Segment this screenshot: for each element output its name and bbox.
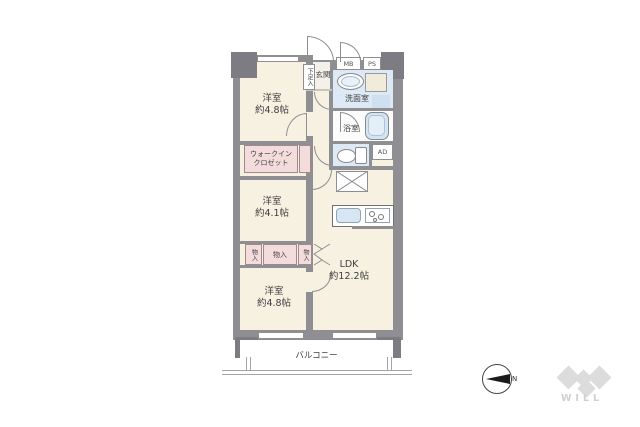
walk-in-closet: ウォークイン クロゼット xyxy=(244,145,298,173)
kitchen-sink-icon xyxy=(336,208,361,223)
washroom-label: 洗面室 xyxy=(333,94,381,104)
pillar-top-left xyxy=(231,52,257,78)
air-duct-label: AD xyxy=(378,148,387,156)
wall-wic-bedmid xyxy=(240,176,306,180)
window-bottom-left xyxy=(259,332,303,339)
bedroom-bottom-label: 洋室 約4.8帖 xyxy=(240,286,308,311)
balcony-rail-post xyxy=(246,357,247,371)
bedroom-bottom-name: 洋室 xyxy=(240,286,308,298)
bedroom-mid-label: 洋室 約4.1帖 xyxy=(238,196,306,221)
sink-icon xyxy=(337,73,364,90)
bathroom-label: 浴室 xyxy=(336,124,366,134)
kitchen-counter-edge xyxy=(352,226,394,229)
storage-left-label: 物入 xyxy=(251,249,257,261)
balcony-rail-line xyxy=(222,374,412,375)
stove-icon xyxy=(365,208,390,223)
toilet-bowl-icon xyxy=(337,149,356,163)
storage-left-box: 物入 xyxy=(245,244,262,265)
bedroom-mid-name: 洋室 xyxy=(238,196,306,208)
mb-door-arc-icon xyxy=(340,42,361,62)
entrance-door-arc-icon xyxy=(307,36,334,62)
ldk-name: LDK xyxy=(315,259,383,271)
bedroom-top-size: 約4.8帖 xyxy=(238,105,306,117)
storage-right-box: 物入 xyxy=(298,244,312,265)
window-top xyxy=(258,56,298,62)
wic-label-line1: ウォークイン xyxy=(245,150,297,159)
ldk-label: LDK 約12.2帖 xyxy=(315,259,383,284)
ldk-size: 約12.2帖 xyxy=(315,271,383,283)
compass-needle-icon xyxy=(486,374,510,384)
entrance-label: 玄関 xyxy=(311,70,335,80)
storage-middle-label: 物入 xyxy=(273,250,287,260)
bedroom-mid-size: 約4.1帖 xyxy=(238,208,306,220)
balcony-label: バルコニー xyxy=(240,351,393,362)
bathtub-inner-icon xyxy=(368,115,385,136)
washer-pan-icon xyxy=(365,73,387,92)
door-gap-bedroom-top xyxy=(306,112,313,136)
storage-middle-box: 物入 xyxy=(263,244,297,265)
wic-label-line2: クロゼット xyxy=(245,159,297,168)
wic-side-cell xyxy=(299,145,311,173)
stove-burner-icon xyxy=(373,218,377,222)
wall-wet-bottom xyxy=(329,166,394,170)
window-bottom-right xyxy=(333,332,376,339)
balcony-rail-post xyxy=(250,357,251,371)
bedroom-bottom-size: 約4.8帖 xyxy=(240,298,308,310)
bedroom-top-label: 洋室 約4.8帖 xyxy=(238,93,306,118)
wall-storage-bedbottom xyxy=(240,265,306,268)
bedroom-top-name: 洋室 xyxy=(238,93,306,105)
toilet-tank-icon xyxy=(355,147,367,164)
pipe-space-box: PS xyxy=(363,57,381,70)
stove-burner-icon xyxy=(369,211,375,217)
wall-right xyxy=(393,55,403,340)
storage-right-label: 物入 xyxy=(302,249,308,261)
pipe-space-label: PS xyxy=(368,60,376,68)
sink-basin-icon xyxy=(341,76,360,87)
logo-text: WILL xyxy=(554,393,610,404)
bathtub-icon xyxy=(365,112,389,140)
balcony-rail-post xyxy=(391,357,392,371)
floorplan-canvas: MB PS AD 下足入 玄関 ウォークイン クロゼット 物入 物入 xyxy=(0,0,640,427)
stove-burner-icon xyxy=(378,214,384,220)
hatch-box-icon xyxy=(336,171,368,192)
air-duct-box: AD xyxy=(372,144,393,160)
compass-north-label: N xyxy=(512,375,517,383)
balcony-rail-post xyxy=(387,357,388,371)
